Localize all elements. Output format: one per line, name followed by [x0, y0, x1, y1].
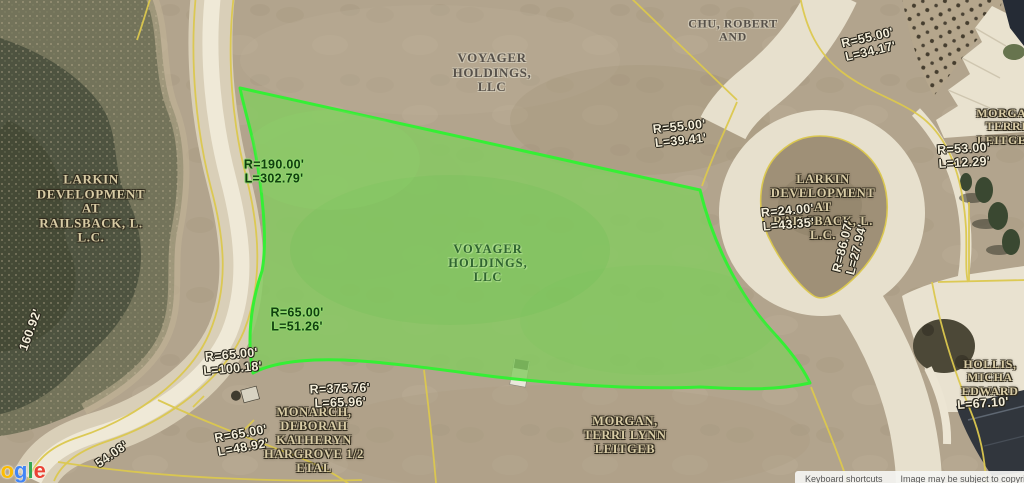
- map-attribution-bar: Keyboard shortcuts Image may be subject …: [795, 471, 1024, 483]
- google-logo-letter: o: [1, 458, 14, 483]
- keyboard-shortcuts-link[interactable]: Keyboard shortcuts: [805, 474, 883, 483]
- shrub: [1003, 44, 1024, 60]
- copyright-notice: Image may be subject to copyri: [901, 474, 1024, 483]
- google-logo-letter: g: [14, 458, 27, 483]
- satellite-map: [0, 0, 1024, 483]
- google-logo-letter: e: [34, 458, 46, 483]
- google-logo[interactable]: Google: [0, 458, 46, 483]
- map-canvas[interactable]: VOYAGER HOLDINGS, LLC CHU, ROBERT AND LA…: [0, 0, 1024, 483]
- shrub-bed: [913, 319, 975, 373]
